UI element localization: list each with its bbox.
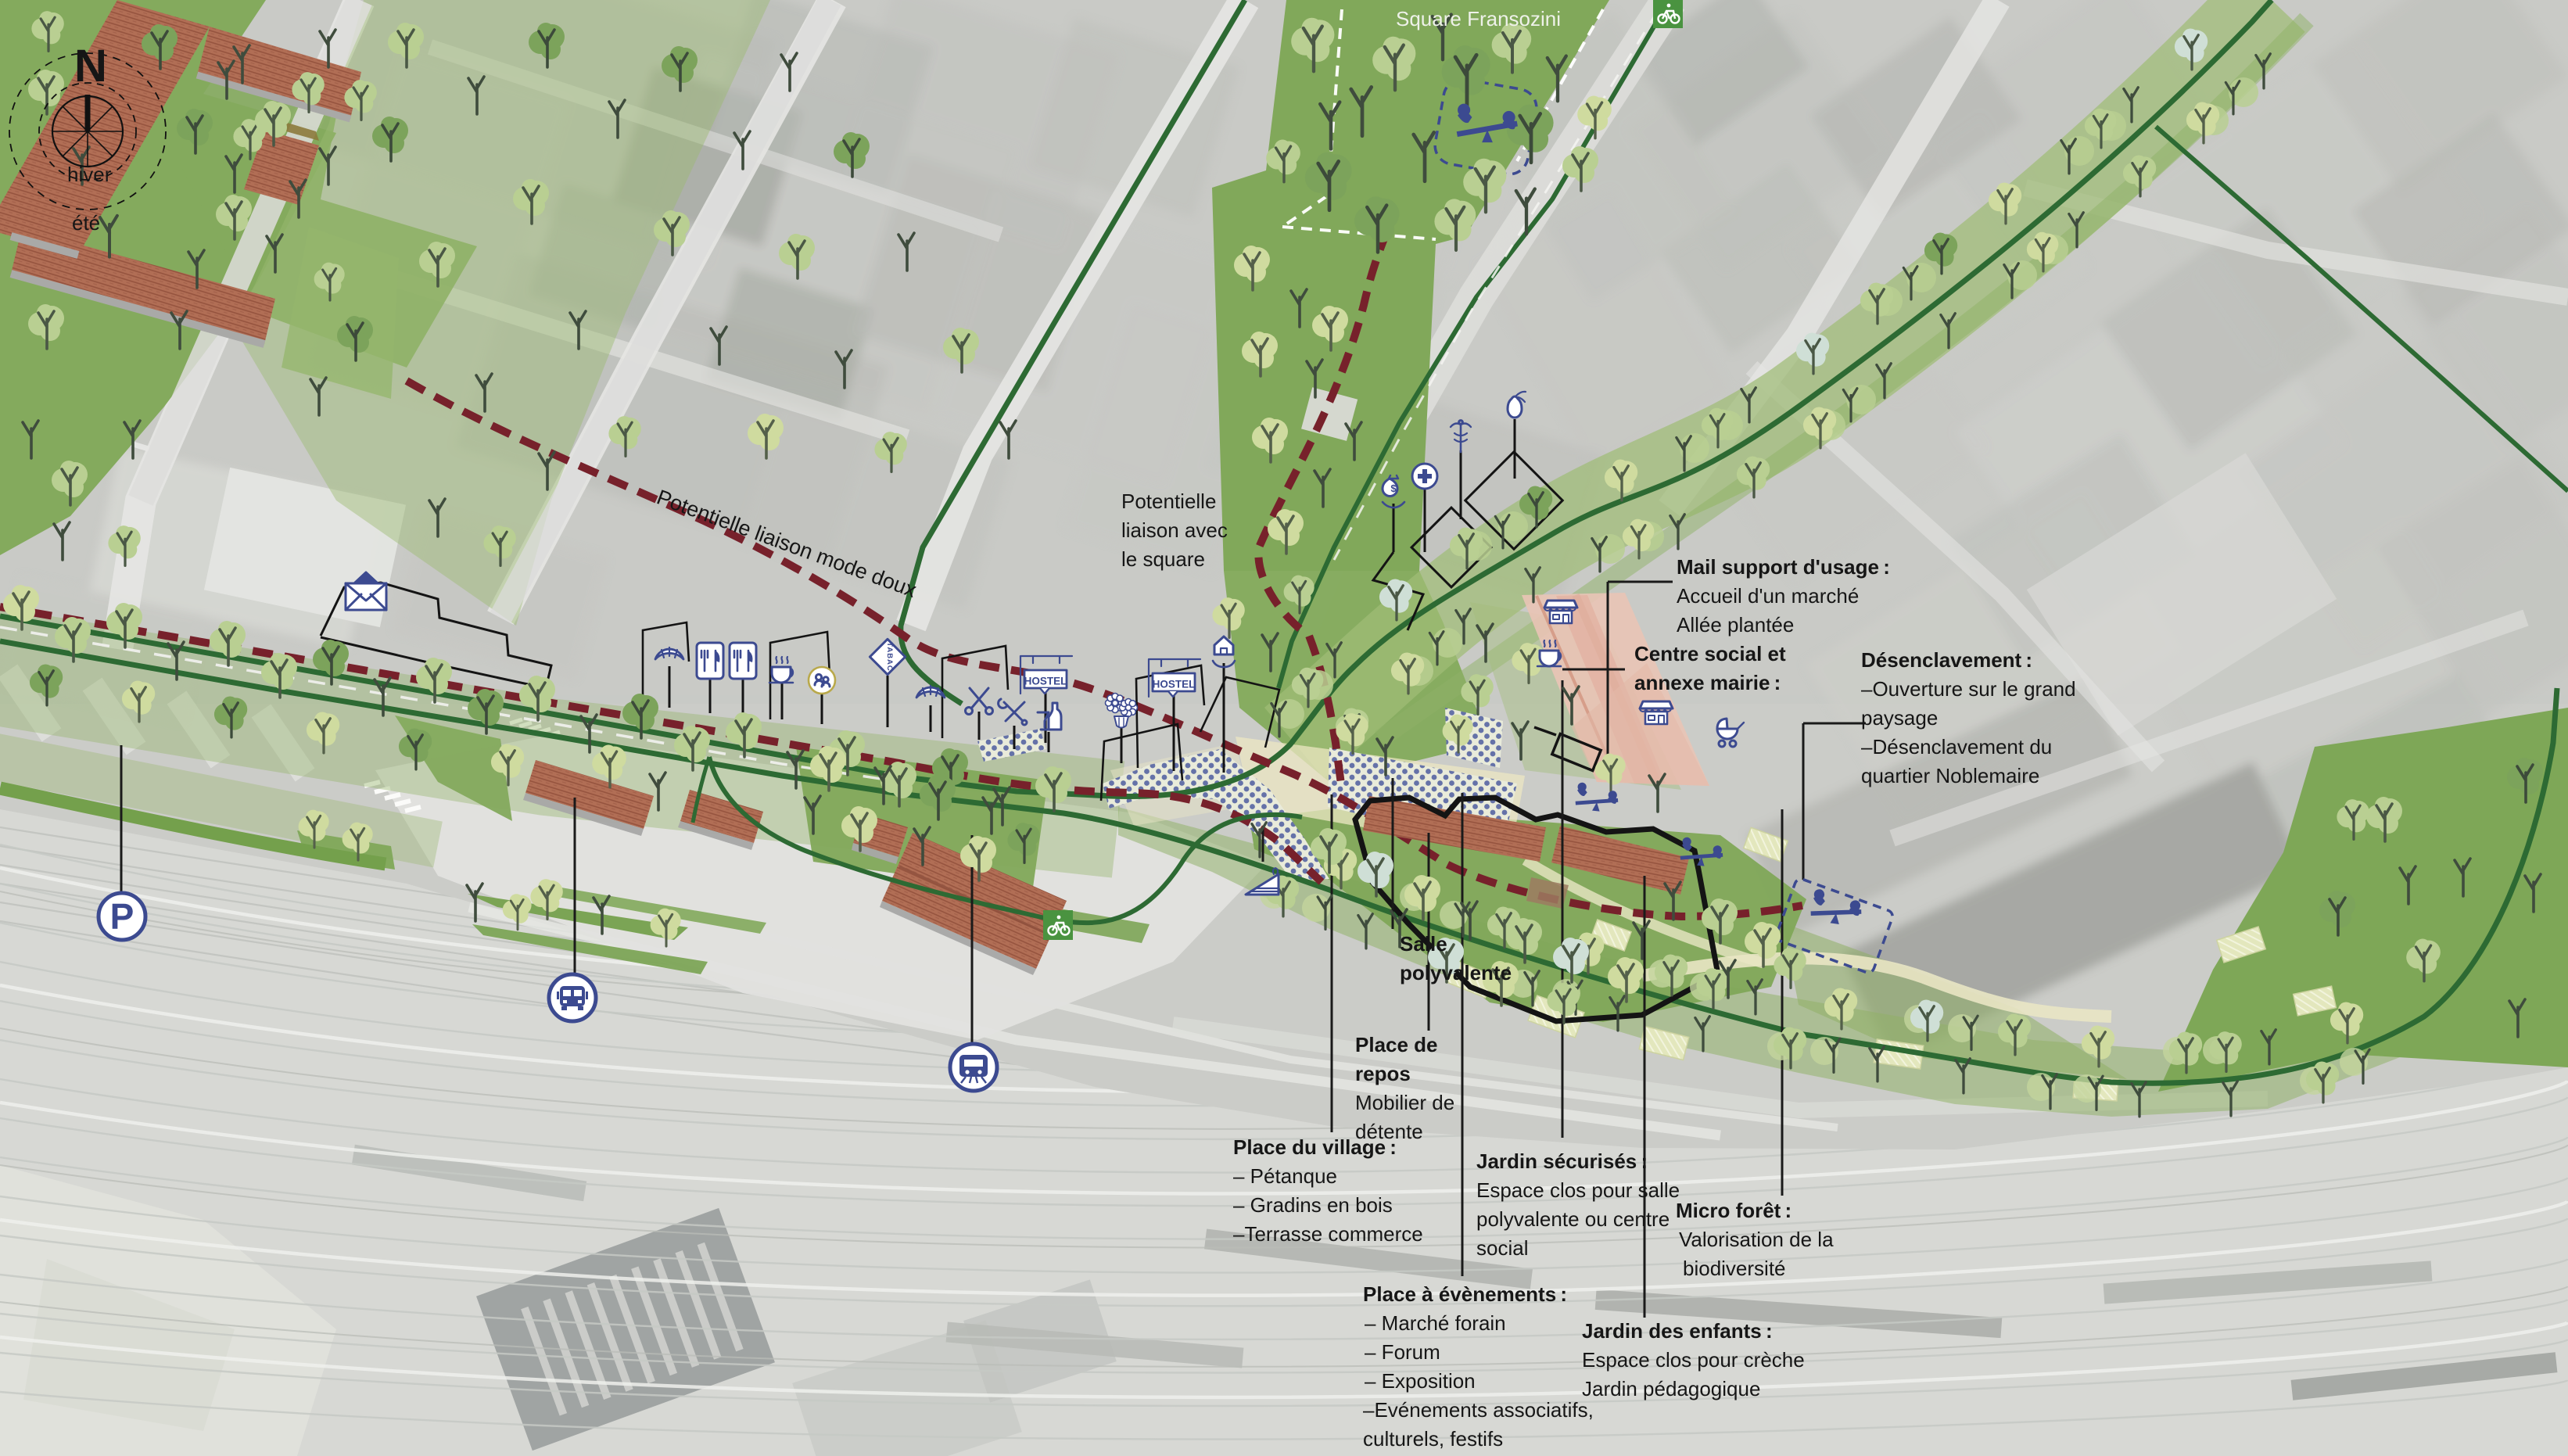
svg-text:–Désenclavement du: –Désenclavement du: [1861, 735, 2052, 758]
svg-text:HOSTEL: HOSTEL: [1024, 676, 1067, 687]
svg-text:polyvalente: polyvalente: [1400, 961, 1512, 984]
svg-text:Valorisation de la: Valorisation de la: [1679, 1228, 1834, 1251]
svg-text:– Exposition: – Exposition: [1365, 1369, 1476, 1393]
svg-text:–Terrasse commerce: –Terrasse commerce: [1233, 1222, 1423, 1246]
svg-text:le square: le square: [1121, 547, 1205, 571]
svg-text:Jardin sécurisés :: Jardin sécurisés :: [1476, 1149, 1648, 1173]
svg-text:HOSTEL: HOSTEL: [1153, 679, 1196, 690]
svg-text:Salle: Salle: [1400, 932, 1447, 956]
svg-text:annexe mairie :: annexe mairie :: [1634, 671, 1781, 694]
svg-text:Allée plantée: Allée plantée: [1677, 613, 1794, 637]
svg-text:quartier Noblemaire: quartier Noblemaire: [1861, 764, 2039, 787]
svg-text:Désenclavement :: Désenclavement :: [1861, 648, 2032, 672]
svg-text:repos: repos: [1355, 1062, 1411, 1085]
svg-text:TABAC: TABAC: [885, 642, 894, 672]
svg-text:culturels, festifs: culturels, festifs: [1363, 1427, 1503, 1451]
svg-text:– Forum: – Forum: [1365, 1340, 1440, 1364]
svg-text:paysage: paysage: [1861, 706, 1938, 730]
svg-text:biodiversité: biodiversité: [1683, 1257, 1786, 1280]
svg-text:–Evénements associatifs,: –Evénements associatifs,: [1363, 1398, 1594, 1422]
svg-text:–Ouverture sur le grand: –Ouverture sur le grand: [1861, 677, 2076, 701]
svg-text:Jardin pédagogique: Jardin pédagogique: [1582, 1377, 1760, 1400]
svg-text:Centre social et: Centre social et: [1634, 642, 1786, 665]
svg-text:social: social: [1476, 1236, 1528, 1260]
svg-text:été: été: [72, 211, 100, 235]
svg-text:Mail support d'usage :: Mail support d'usage :: [1677, 555, 1890, 579]
svg-text:– Pétanque: – Pétanque: [1233, 1164, 1337, 1188]
svg-text:Jardin des enfants :: Jardin des enfants :: [1582, 1319, 1773, 1343]
svg-text:Mobilier de: Mobilier de: [1355, 1091, 1454, 1114]
svg-text:– Gradins en bois: – Gradins en bois: [1233, 1193, 1393, 1217]
svg-text:$: $: [1390, 482, 1397, 494]
svg-text:Micro forêt :: Micro forêt :: [1676, 1199, 1792, 1222]
svg-text:polyvalente ou centre: polyvalente ou centre: [1476, 1207, 1670, 1231]
svg-text:Square Fransozini: Square Fransozini: [1396, 7, 1561, 30]
svg-text:N: N: [74, 41, 107, 91]
svg-text:P: P: [110, 896, 134, 937]
svg-text:Place à évènements :: Place à évènements :: [1363, 1282, 1567, 1306]
svg-text:Place du village :: Place du village :: [1233, 1135, 1397, 1159]
svg-text:Espace clos pour crèche: Espace clos pour crèche: [1582, 1348, 1805, 1372]
svg-text:Potentielle: Potentielle: [1121, 490, 1216, 513]
svg-text:liaison avec: liaison avec: [1121, 518, 1228, 542]
svg-text:hiver: hiver: [67, 163, 112, 186]
svg-text:Accueil d'un marché: Accueil d'un marché: [1677, 584, 1859, 608]
svg-text:Place de: Place de: [1355, 1033, 1438, 1056]
svg-text:– Marché forain: – Marché forain: [1365, 1311, 1506, 1335]
svg-text:Espace clos pour salle: Espace clos pour salle: [1476, 1178, 1680, 1202]
